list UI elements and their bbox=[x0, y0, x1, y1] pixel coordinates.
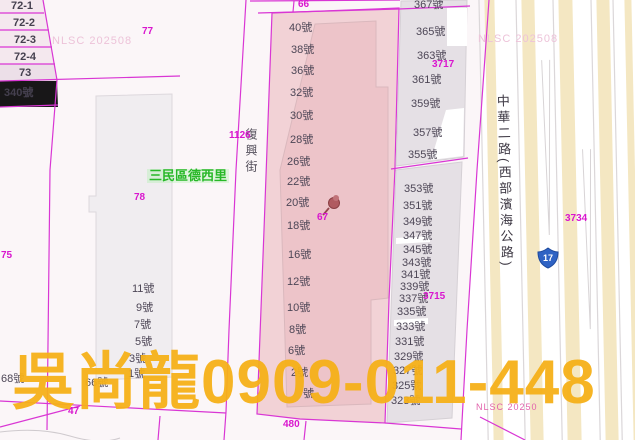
terrain-line bbox=[0, 430, 120, 440]
left-building bbox=[89, 94, 172, 380]
building-gap bbox=[447, 8, 467, 46]
nlsc-watermark-top-left: NLSC 202508 bbox=[52, 35, 132, 47]
map-canvas[interactable]: 17 復興街 中華二路(西部濱海公路) 三民區德西里 NLSC 202508 N… bbox=[0, 0, 635, 440]
street-name-label: 復興街 bbox=[243, 128, 260, 176]
route-shield-number: 17 bbox=[543, 253, 553, 263]
district-label: 三民區德西里 bbox=[147, 169, 229, 183]
realtor-watermark: 吳尚龍0909-011-448 bbox=[12, 352, 596, 414]
nlsc-watermark-top-right: NLSC 202508 bbox=[478, 33, 558, 45]
parcel-row-340-fill bbox=[0, 81, 58, 107]
parcel-row-73-fill bbox=[0, 64, 57, 81]
